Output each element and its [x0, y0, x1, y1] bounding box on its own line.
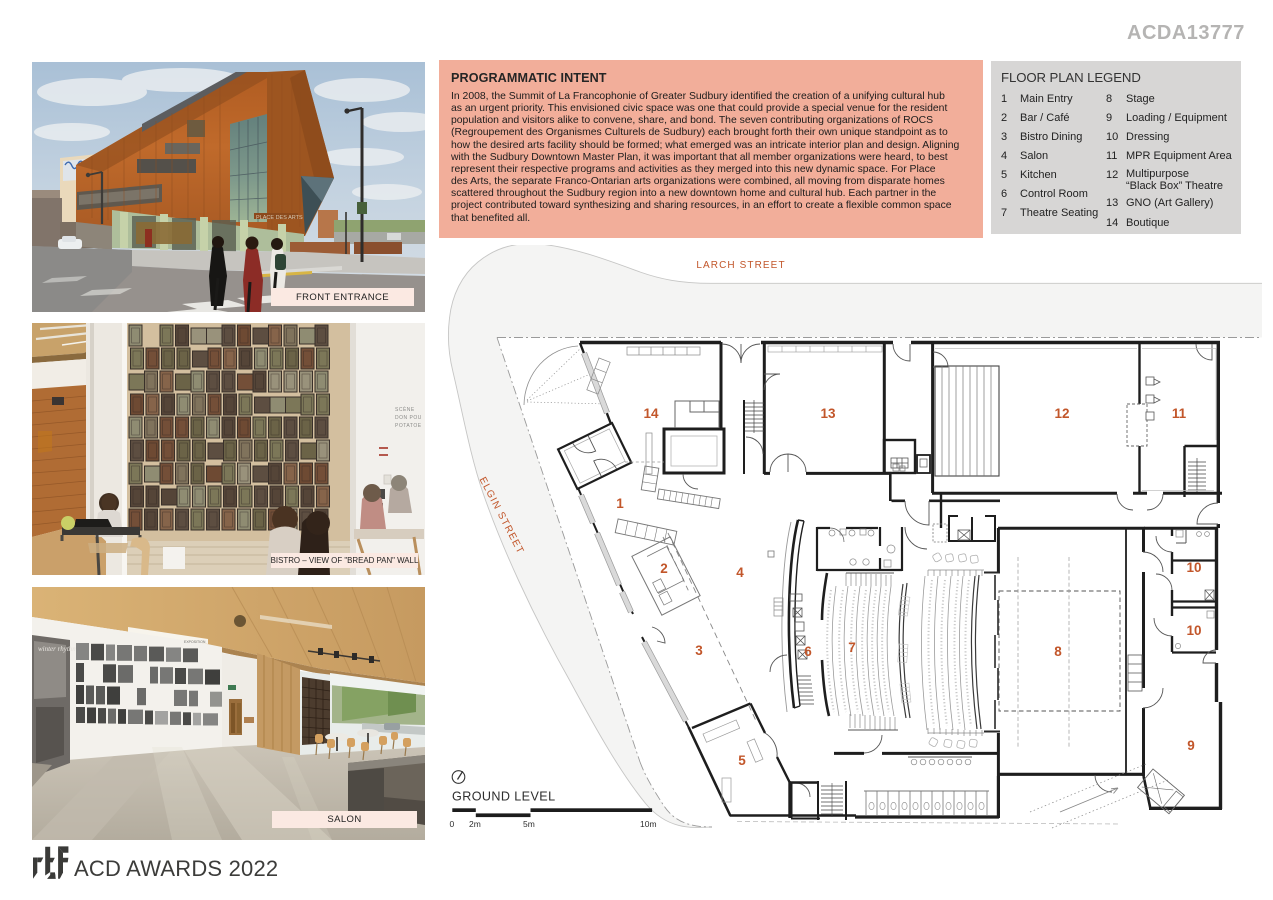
svg-text:9: 9: [1187, 738, 1195, 753]
svg-text:4: 4: [736, 565, 744, 580]
svg-text:DON POU: DON POU: [395, 415, 422, 421]
svg-text:0: 0: [450, 819, 455, 829]
svg-text:POTATOE: POTATOE: [395, 423, 422, 429]
svg-text:5m: 5m: [523, 819, 535, 829]
svg-text:6: 6: [804, 644, 812, 659]
svg-text:2: 2: [660, 561, 668, 576]
svg-text:LARCH STREET: LARCH STREET: [696, 260, 785, 271]
svg-text:2m: 2m: [469, 819, 481, 829]
svg-text:11: 11: [1172, 406, 1187, 421]
svg-text:EXPOSITION: EXPOSITION: [184, 640, 206, 644]
svg-text:8: 8: [1054, 644, 1062, 659]
svg-text:7: 7: [848, 640, 856, 655]
svg-text:3: 3: [695, 643, 703, 658]
svg-text:13: 13: [820, 406, 836, 421]
svg-text:winter rhythm: winter rhythm: [38, 645, 77, 653]
svg-text:10m: 10m: [640, 819, 657, 829]
svg-text:PLACE DES ARTS: PLACE DES ARTS: [256, 215, 303, 221]
svg-text:GROUND LEVEL: GROUND LEVEL: [452, 790, 555, 804]
svg-text:1: 1: [616, 496, 624, 511]
svg-text:12: 12: [1054, 406, 1069, 421]
svg-text:10: 10: [1186, 560, 1201, 575]
svg-text:10: 10: [1186, 623, 1201, 638]
svg-text:14: 14: [643, 406, 659, 421]
svg-text:5: 5: [738, 753, 746, 768]
svg-text:SCÈNE: SCÈNE: [395, 406, 415, 413]
